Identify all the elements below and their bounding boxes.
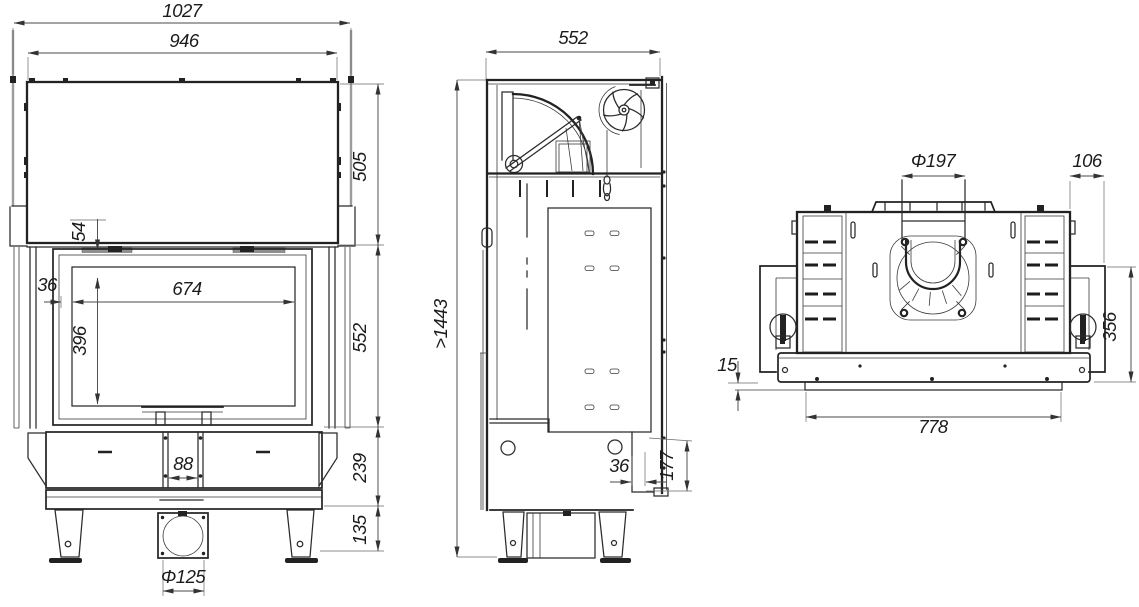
dim-rear-height: 356 xyxy=(1099,311,1120,342)
rear-pulley-right xyxy=(1070,314,1096,348)
rear-vent-panel-right xyxy=(1025,216,1064,352)
rear-collar-flange xyxy=(890,236,976,320)
dim-front-foot-height: 135 xyxy=(349,514,370,545)
rear-bottom-frame xyxy=(778,353,1090,382)
dim-front-hood-height: 505 xyxy=(349,151,370,182)
front-leg-adjuster-left xyxy=(65,541,71,547)
side-heat-plate xyxy=(548,208,651,432)
dim-rear-frame-width: 778 xyxy=(918,416,949,437)
front-left-plate-cap xyxy=(10,76,16,83)
front-wing-left xyxy=(28,433,46,486)
dim-side-depth: 552 xyxy=(558,27,589,48)
rear-flue-pipe xyxy=(902,180,965,240)
front-duct-circle xyxy=(163,516,203,556)
front-leg-left xyxy=(55,510,83,557)
rear-body xyxy=(797,212,1070,353)
side-door-post xyxy=(502,92,513,160)
rear-collar-U-inner xyxy=(911,240,955,283)
side-wheel-housing xyxy=(607,90,641,176)
front-side-brackets xyxy=(10,206,355,246)
front-hood-side-bolts xyxy=(24,103,341,178)
technical-drawing-page: 1027 946 505 54 36 674 396 552 88 239 13… xyxy=(0,0,1139,607)
side-pulley-wheel xyxy=(599,87,644,135)
front-duct-tab xyxy=(178,511,187,516)
side-leg-front xyxy=(503,512,524,557)
rear-bottom-lip xyxy=(805,382,1062,390)
dim-front-base-height: 239 xyxy=(349,453,370,484)
side-view: 552 >1443 36 177 xyxy=(430,27,692,563)
front-leg-right xyxy=(287,510,314,557)
dim-front-overall-width: 1027 xyxy=(162,0,202,21)
side-plate-slots xyxy=(585,231,619,410)
dim-front-side-inset: 36 xyxy=(37,274,58,295)
dim-front-glass-height: 396 xyxy=(69,325,90,356)
dim-front-glass-width: 674 xyxy=(172,278,202,299)
front-handle-stem-left xyxy=(156,412,165,425)
side-foot-pad-rear xyxy=(600,558,631,563)
side-counterweight xyxy=(556,141,590,172)
rear-view: Φ197 106 356 15 778 xyxy=(717,150,1136,437)
front-leg-adjuster-right xyxy=(297,541,303,547)
dim-front-channel-width: 88 xyxy=(173,453,194,474)
rear-top-bolt-left xyxy=(824,205,831,212)
dim-front-outlet-diameter: Φ125 xyxy=(161,566,207,587)
side-foot-pad-front xyxy=(498,558,528,563)
dim-front-top-offset: 54 xyxy=(68,222,89,242)
rear-strip-ticks xyxy=(885,203,985,210)
side-door-sill xyxy=(490,419,549,432)
front-handle-stem-right xyxy=(202,412,211,425)
rear-vent-panel-left xyxy=(803,216,842,352)
front-foot-pad-right xyxy=(285,558,318,563)
rear-slots xyxy=(851,222,1015,277)
dim-rear-lip-height: 15 xyxy=(717,354,738,375)
dim-side-total-height: >1443 xyxy=(430,298,451,349)
dim-rear-side-offset: 106 xyxy=(1072,150,1103,171)
rear-dimensions: Φ197 106 356 15 778 xyxy=(717,150,1136,437)
side-rear-pocket xyxy=(632,432,654,492)
front-view: 1027 946 505 54 36 674 396 552 88 239 13… xyxy=(10,0,384,596)
front-duct-bolts xyxy=(161,516,205,555)
front-door-frame xyxy=(53,249,312,425)
side-chain-hook xyxy=(603,176,610,201)
side-duct-box xyxy=(527,513,595,558)
front-foot-pad-left xyxy=(49,558,82,563)
side-hole-right xyxy=(608,440,622,454)
front-hood xyxy=(27,82,338,243)
front-bottom-duct xyxy=(158,513,208,558)
dim-side-rear-gap: 36 xyxy=(609,455,630,476)
front-right-plate-cap xyxy=(348,76,354,83)
side-grate-bars xyxy=(520,180,600,197)
front-dimensions: 1027 946 505 54 36 674 396 552 88 239 13… xyxy=(13,0,384,596)
rear-vent-slats-left xyxy=(803,242,842,319)
dim-rear-flue-diameter: Φ197 xyxy=(911,150,957,171)
side-leg-rear xyxy=(599,512,626,557)
rear-vent-slats-right xyxy=(1025,242,1064,319)
dim-front-middle-height: 552 xyxy=(349,322,370,353)
rear-frame-bolts xyxy=(815,364,1049,381)
side-hole-left xyxy=(501,441,515,455)
rear-top-bolt-right xyxy=(1037,205,1044,212)
dim-side-outlet-height: 177 xyxy=(656,450,677,481)
dim-front-hood-width: 946 xyxy=(169,30,200,51)
side-dimensions: 552 >1443 36 177 xyxy=(430,27,692,557)
rear-pulley-left xyxy=(770,314,796,348)
rear-top-strip xyxy=(872,202,995,212)
fireplace-technical-drawing: 1027 946 505 54 36 674 396 552 88 239 13… xyxy=(0,0,1139,607)
